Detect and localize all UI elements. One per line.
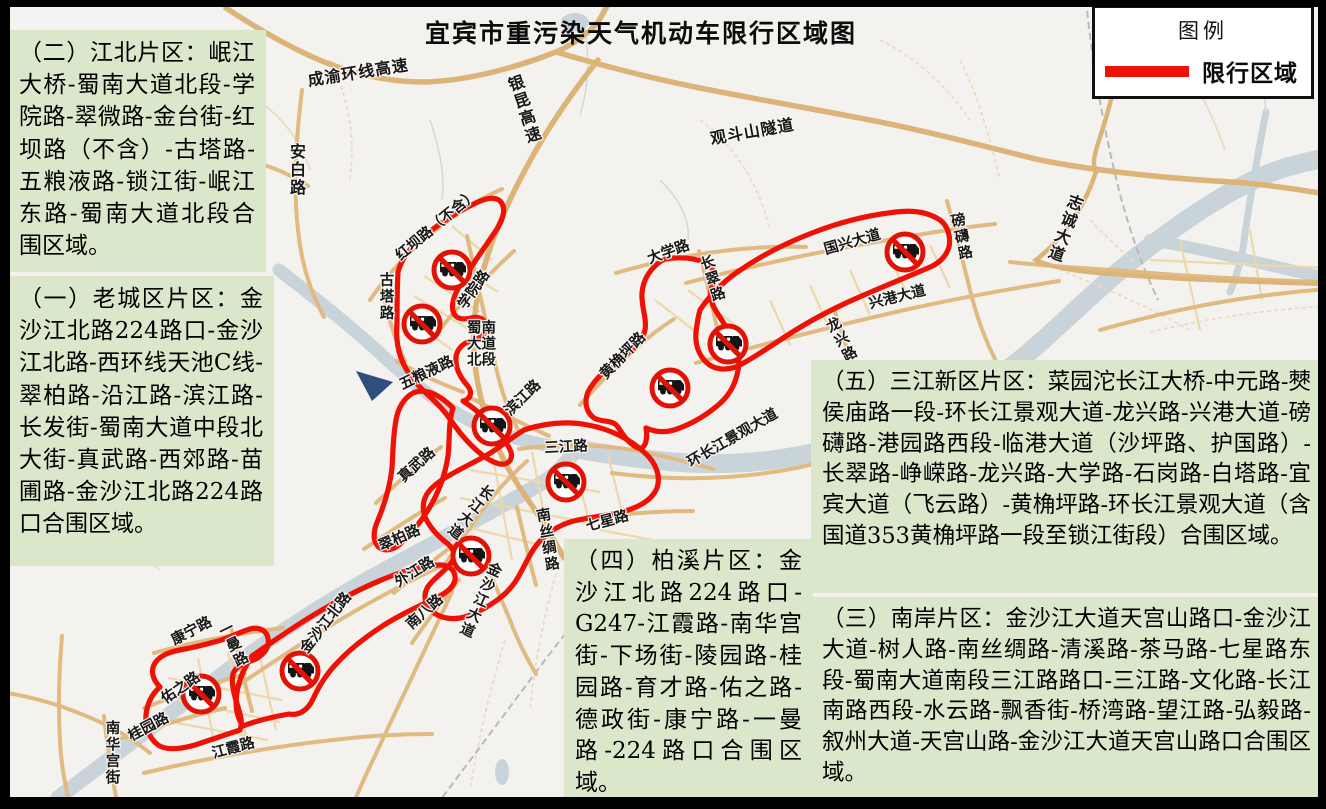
frame-border-bottom	[0, 797, 1326, 809]
zone-body: 金沙江大道天宫山路口-金沙江大道-树人路-南丝绸路-清溪路-茶马路-七星路东段-…	[822, 606, 1311, 786]
map-document: 宜宾市重污染天气机动车限行区域图 图例 限行区域 （二）江北片区：岷江大桥-蜀南…	[0, 0, 1326, 809]
zone-body: 金沙江北路224路口-金沙江北路-西环线天池C线-翠柏路-沿江路-滨江路-长发街…	[19, 286, 263, 537]
legend-restricted-label: 限行区域	[1202, 54, 1298, 88]
no-entry-icon	[652, 370, 688, 406]
no-entry-icon	[474, 408, 510, 444]
zone-body: 岷江大桥-蜀南大道北段-学院路-翠微路-金台街-红坝路（不含）-古塔路-五粮液路…	[19, 40, 255, 259]
no-entry-icon	[282, 653, 318, 689]
zone-heading: （四）柏溪片区：	[575, 548, 779, 574]
info-box-baixi: （四）柏溪片区：金沙江北路224路口-G247-江霞路-南华宫街-下场街-陵园路…	[564, 539, 813, 801]
legend-box: 图例 限行区域	[1092, 5, 1314, 99]
zone-body: 菜园沱长江大桥-中元路-僰侯庙路一段-环长江景观大道-龙兴路-兴港大道-磅礴路-…	[822, 369, 1311, 549]
no-entry-icon	[710, 326, 746, 362]
road-label-sanjiang-rd: 三江路	[544, 434, 589, 457]
info-box-jiangbei: （二）江北片区：岷江大桥-蜀南大道北段-学院路-翠微路-金台街-红坝路（不含）-…	[8, 30, 266, 272]
zone-heading: （一）老城区片区：	[19, 286, 240, 312]
frame-border-top	[0, 0, 1326, 7]
page-title: 宜宾市重污染天气机动车限行区域图	[398, 14, 884, 50]
restricted-zone-line-swatch	[1105, 66, 1189, 77]
frame-border-left	[0, 0, 10, 809]
road-label-nanhuagong-st: 南华宫街	[102, 720, 123, 786]
no-entry-icon	[404, 306, 440, 342]
zone-heading: （二）江北片区：	[19, 40, 208, 66]
frame-border-right	[1318, 0, 1326, 809]
zone-heading: （五）三江新区片区：	[822, 369, 1048, 395]
info-box-sanjiang: （五）三江新区片区：菜园沱长江大桥-中元路-僰侯庙路一段-环长江景观大道-龙兴路…	[811, 360, 1322, 593]
map-arrow-marker	[356, 371, 393, 401]
zone-heading: （三）南岸片区：	[822, 606, 1005, 632]
road-label-anbai-rd: 安白路	[284, 143, 308, 197]
info-box-laochengqu: （一）老城区片区：金沙江北路224路口-金沙江北路-西环线天池C线-翠柏路-沿江…	[8, 276, 274, 566]
road-label-shunan-ave-north: 蜀南大道北段	[467, 321, 507, 370]
no-entry-icon	[887, 234, 923, 270]
road-label-guta-rd: 古塔路	[376, 272, 397, 322]
legend-title: 图例	[1095, 15, 1311, 45]
info-box-nanan: （三）南岸片区：金沙江大道天宫山路口-金沙江大道-树人路-南丝绸路-清溪路-茶马…	[811, 597, 1322, 797]
zone-body: 金沙江北路224路口-G247-江霞路-南华宫街-下场街-陵园路-桂园路-育才路…	[575, 548, 802, 796]
no-entry-icon	[548, 464, 584, 500]
